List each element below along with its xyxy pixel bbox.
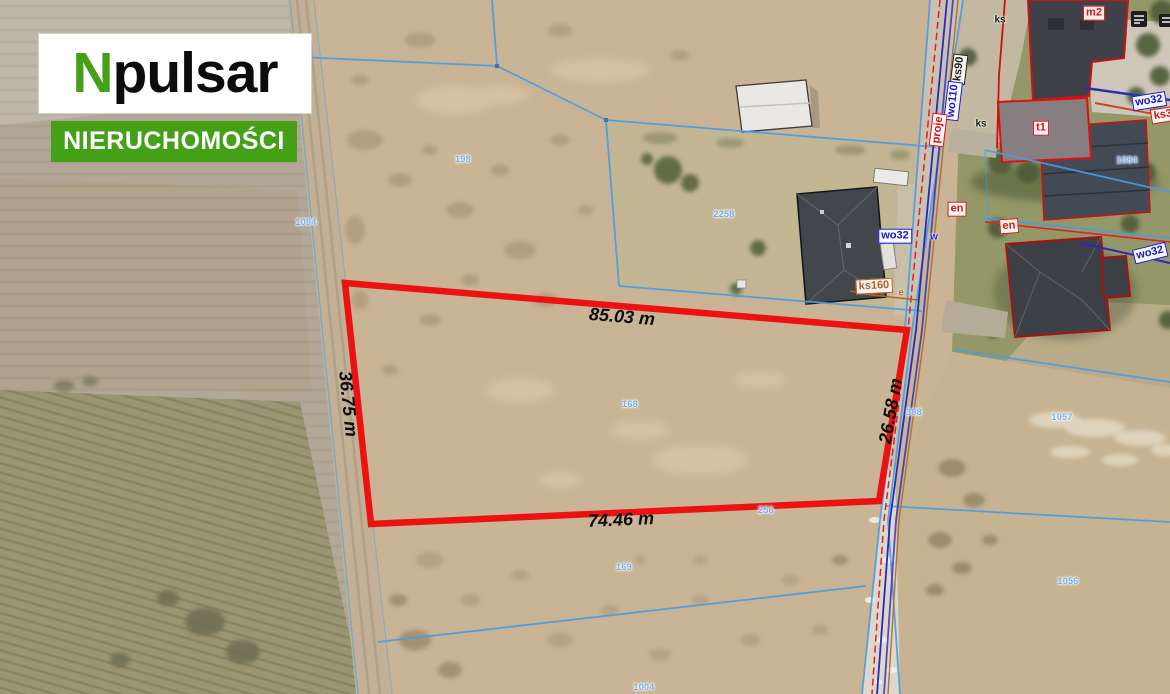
brand-name-prefix: N (72, 45, 112, 102)
brand-tagline: NIERUCHOMOŚCI (51, 121, 297, 162)
brand-name: Npulsar (38, 33, 312, 114)
brand-name-rest: pulsar (113, 45, 278, 102)
garage-roof (998, 98, 1091, 162)
house-right-roof (1006, 237, 1110, 337)
brand-logo: Npulsar NIERUCHOMOŚCI (38, 33, 312, 162)
listing-photo: 85.03 m 74.46 m 36.75 m 26.58 m 19822581… (0, 0, 1170, 694)
